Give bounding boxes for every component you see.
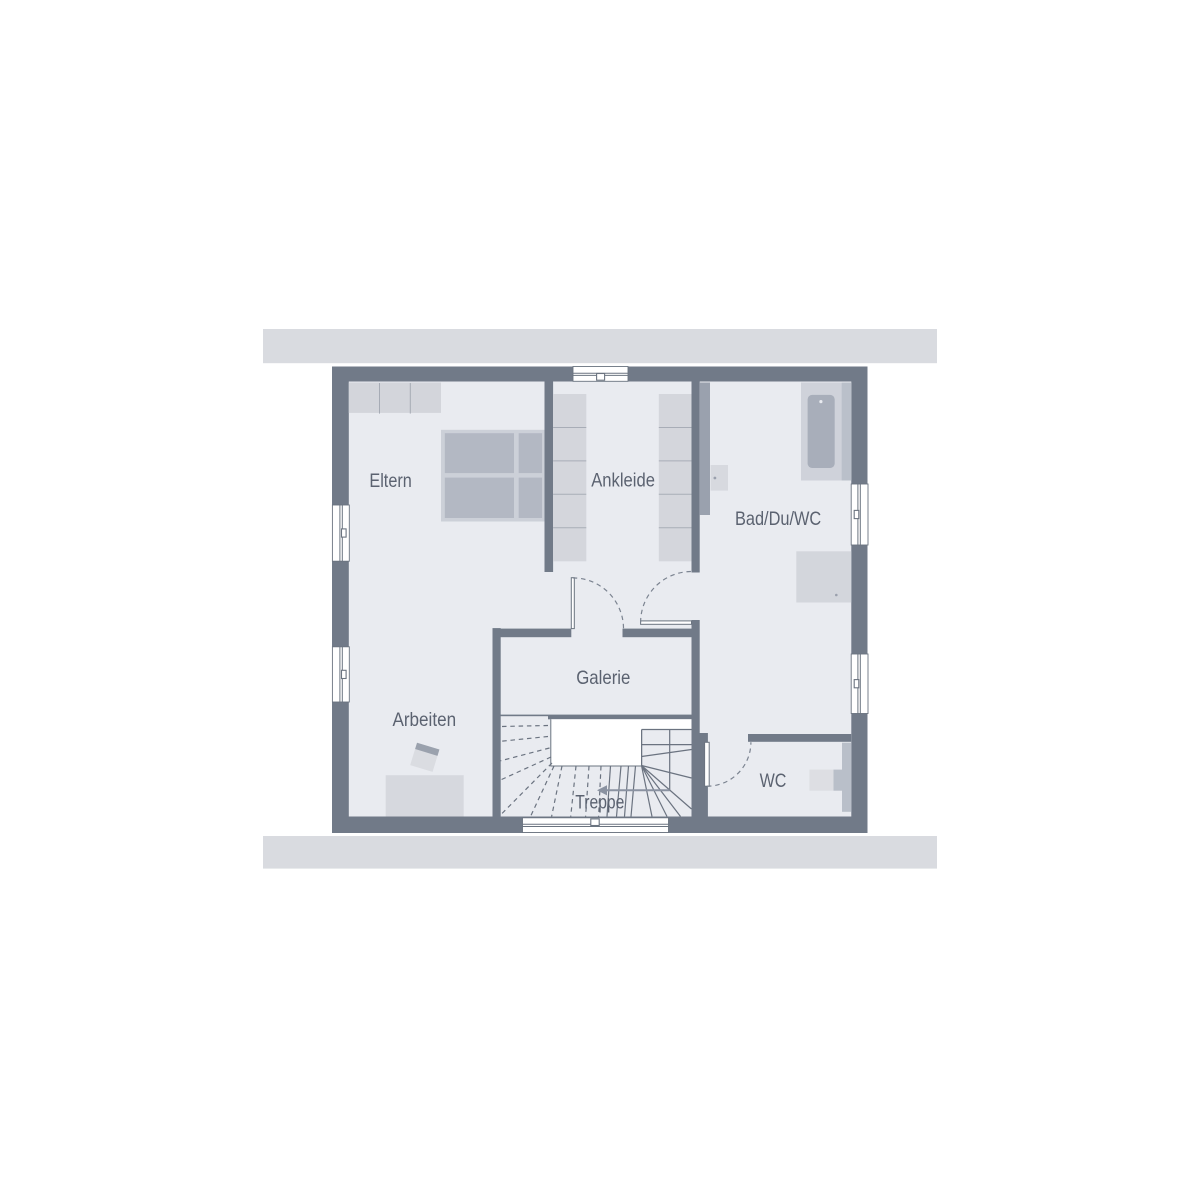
svg-text:Eltern: Eltern	[369, 470, 412, 492]
svg-text:Bad/Du/WC: Bad/Du/WC	[735, 508, 821, 530]
svg-text:WC: WC	[760, 770, 787, 792]
svg-text:Arbeiten: Arbeiten	[392, 709, 456, 731]
svg-text:Treppe: Treppe	[575, 792, 624, 814]
svg-text:Galerie: Galerie	[576, 667, 630, 689]
svg-text:Ankleide: Ankleide	[591, 469, 655, 491]
